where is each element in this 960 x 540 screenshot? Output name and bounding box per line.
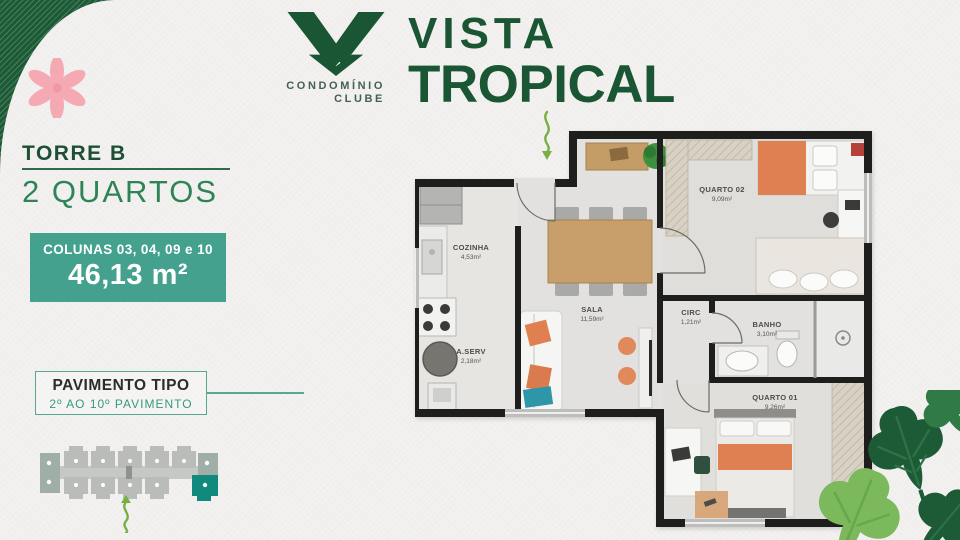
room-label-circ: CIRC	[681, 308, 701, 317]
room-label-aserv: A.SERV	[456, 347, 486, 356]
room-area-quarto02: 9,09m²	[712, 196, 733, 203]
arrow-up-icon	[117, 495, 135, 533]
pavement-box: PAVIMENTO TIPO 2º AO 10º PAVIMENTO	[35, 371, 207, 415]
tower-underline	[22, 168, 230, 170]
room-label-cozinha: COZINHA	[453, 243, 490, 252]
room-area-quarto01: 9,26m²	[765, 404, 786, 411]
logo-caption-line2: CLUBE	[245, 93, 385, 106]
project-title: VISTA TROPICAL	[408, 12, 675, 111]
room-area-banho: 3,10m²	[757, 331, 778, 338]
room-label-quarto01: QUARTO 01	[752, 393, 798, 402]
room-area-aserv: 2,18m²	[461, 358, 482, 365]
badge-area: 46,13 m²	[30, 259, 226, 292]
flyer-canvas: CONDOMÍNIO CLUBE VISTA TROPICAL TORRE B …	[0, 0, 960, 540]
paper-background: CONDOMÍNIO CLUBE VISTA TROPICAL TORRE B …	[0, 0, 960, 540]
room-area-circ: 1,21m²	[681, 319, 702, 326]
room-area-sala: 11,59m²	[580, 316, 604, 323]
project-title-line2: TROPICAL	[408, 58, 675, 111]
apartment-floorplan: COZINHA 4,53m² SALA 11,59m² A.SERV 2,18m…	[415, 128, 875, 532]
room-area-cozinha: 4,53m²	[461, 254, 482, 261]
room-label-sala: SALA	[581, 305, 603, 314]
pavement-title: PAVIMENTO TIPO	[36, 377, 206, 395]
unit-type-label: 2 QUARTOS	[22, 174, 218, 210]
flower-icon	[27, 58, 87, 118]
room-label-banho: BANHO	[753, 320, 782, 329]
project-title-line1: VISTA	[408, 12, 675, 56]
brand-logo-icon	[287, 12, 385, 76]
tower-label: TORRE B	[22, 142, 127, 166]
room-label-quarto02: QUARTO 02	[699, 185, 745, 194]
floor-footprint-diagram	[40, 444, 218, 502]
pavement-subtitle: 2º AO 10º PAVIMENTO	[36, 397, 206, 411]
pavement-connector-line	[207, 392, 304, 394]
logo-caption: CONDOMÍNIO CLUBE	[245, 80, 385, 106]
monstera-leaves-icon	[808, 390, 960, 540]
logo-caption-line1: CONDOMÍNIO	[245, 80, 385, 93]
area-badge: COLUNAS 03, 04, 09 e 10 46,13 m²	[30, 233, 226, 302]
badge-columns: COLUNAS 03, 04, 09 e 10	[30, 242, 226, 257]
